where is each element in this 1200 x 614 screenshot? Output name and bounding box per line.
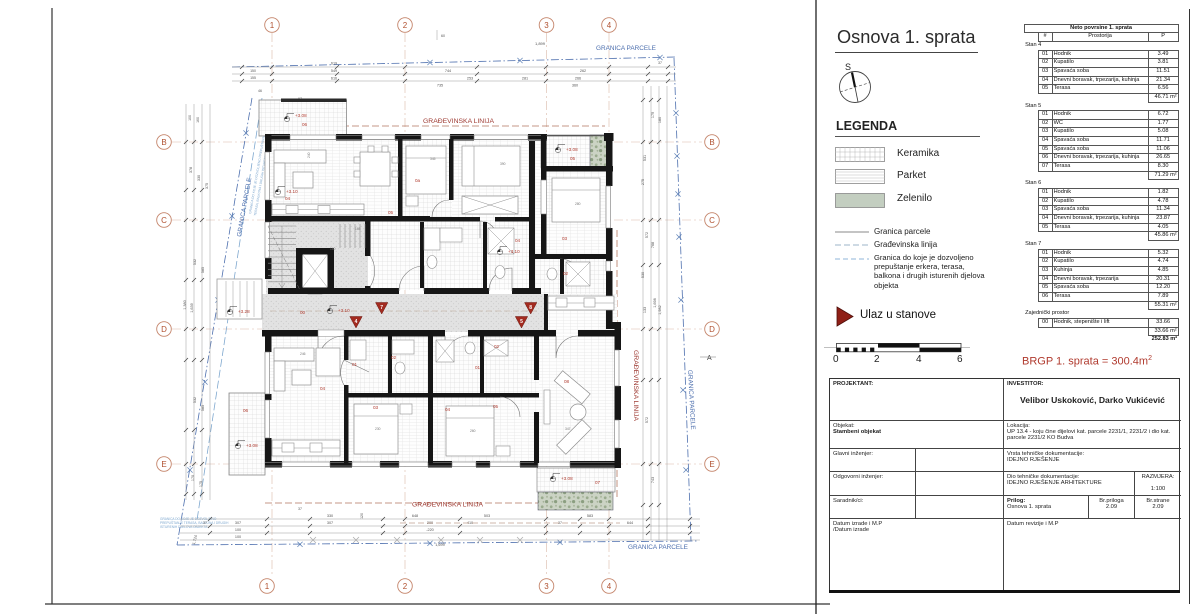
svg-text:530: 530 (641, 272, 645, 278)
svg-text:150: 150 (250, 69, 256, 73)
svg-text:C: C (709, 216, 715, 225)
svg-text:100: 100 (235, 535, 241, 539)
svg-text:345: 345 (430, 157, 436, 161)
svg-text:1,724: 1,724 (192, 535, 198, 545)
svg-text:B: B (709, 138, 714, 147)
svg-text:0a: 0a (415, 178, 421, 183)
svg-text:02: 02 (494, 344, 500, 349)
svg-text:03: 03 (562, 236, 568, 241)
svg-text:3: 3 (544, 21, 549, 30)
svg-text:1,982: 1,982 (658, 305, 662, 315)
svg-text:04: 04 (445, 407, 451, 412)
svg-text:ISTURENIH DJELOVA OBJEKTA: ISTURENIH DJELOVA OBJEKTA (160, 525, 208, 529)
svg-text:375: 375 (205, 183, 209, 189)
svg-text:1,380: 1,380 (183, 300, 187, 310)
svg-text:572: 572 (645, 232, 649, 238)
svg-text:+3.10: +3.10 (338, 308, 350, 313)
svg-text:S: S (845, 62, 851, 72)
svg-text:1: 1 (270, 21, 275, 30)
svg-text:04: 04 (515, 238, 521, 243)
svg-text:+3.28: +3.28 (238, 309, 250, 314)
svg-text:03: 03 (373, 405, 379, 410)
svg-text:1,698: 1,698 (653, 298, 657, 308)
svg-text:04: 04 (320, 386, 326, 391)
svg-text:00: 00 (300, 310, 306, 315)
svg-text:GRAĐEVINSKA LINIJA: GRAĐEVINSKA LINIJA (423, 118, 494, 125)
svg-text:B: B (161, 138, 166, 147)
svg-text:C: C (161, 216, 167, 225)
svg-text:160: 160 (196, 117, 200, 123)
svg-text:46: 46 (258, 89, 262, 93)
svg-text:179: 179 (651, 112, 655, 118)
svg-text:2: 2 (403, 582, 408, 591)
svg-text:585: 585 (201, 405, 205, 411)
svg-text:307: 307 (327, 521, 333, 525)
svg-text:GRAĐEVINSKA LINIJA: GRAĐEVINSKA LINIJA (412, 502, 483, 509)
svg-text:378: 378 (189, 167, 193, 173)
svg-text:360: 360 (572, 84, 578, 88)
svg-text:D: D (161, 325, 167, 334)
svg-text:100: 100 (235, 528, 241, 532)
svg-text:37: 37 (298, 507, 302, 511)
svg-text:1: 1 (265, 582, 270, 591)
svg-text:D: D (709, 325, 715, 334)
svg-text:175: 175 (199, 481, 203, 487)
svg-text:37: 37 (203, 521, 207, 525)
svg-text:503: 503 (484, 514, 490, 518)
svg-text:743: 743 (651, 477, 655, 483)
svg-text:330: 330 (327, 514, 333, 518)
svg-text:260: 260 (470, 429, 476, 433)
svg-text:04: 04 (285, 196, 291, 201)
svg-text:253: 253 (467, 77, 473, 81)
svg-text:155: 155 (250, 76, 256, 80)
svg-text:133: 133 (643, 307, 647, 313)
svg-text:583: 583 (587, 514, 593, 518)
svg-text:06: 06 (243, 408, 249, 413)
svg-text:05: 05 (570, 156, 576, 161)
svg-text:37: 37 (658, 61, 662, 65)
svg-text:262: 262 (580, 69, 586, 73)
svg-text:02: 02 (563, 271, 569, 276)
svg-text:+3.08: +3.08 (295, 113, 307, 118)
svg-text:+3.08: +3.08 (246, 443, 258, 448)
svg-text:246: 246 (300, 352, 306, 356)
svg-text:+3.10: +3.10 (508, 249, 520, 254)
svg-text:5: 5 (520, 319, 523, 325)
svg-text:8: 8 (529, 305, 532, 311)
svg-text:180: 180 (658, 117, 662, 123)
svg-text:08: 08 (564, 379, 570, 384)
svg-text:1,899: 1,899 (535, 41, 546, 46)
svg-text:549: 549 (331, 69, 337, 73)
svg-text:05: 05 (493, 404, 499, 409)
svg-text:1,699: 1,699 (435, 543, 445, 547)
svg-text:GRANICA PARCELE: GRANICA PARCELE (686, 370, 696, 430)
svg-text:307: 307 (235, 521, 241, 525)
svg-text:585: 585 (201, 267, 205, 273)
svg-text:165: 165 (355, 227, 361, 231)
svg-text:+3.10: +3.10 (286, 189, 298, 194)
svg-text:06: 06 (302, 122, 308, 127)
svg-text:4: 4 (355, 319, 358, 325)
svg-text:266: 266 (575, 77, 581, 81)
svg-text:160: 160 (330, 247, 336, 251)
svg-text:4: 4 (607, 21, 612, 30)
svg-text:619: 619 (331, 62, 337, 66)
svg-text:A: A (707, 355, 712, 362)
svg-text:281: 281 (522, 77, 528, 81)
svg-text:GRANICA PARCELE: GRANICA PARCELE (628, 544, 688, 551)
svg-text:07: 07 (595, 480, 601, 485)
svg-text:230: 230 (375, 427, 381, 431)
svg-text:532: 532 (193, 259, 197, 265)
svg-text:648: 648 (412, 514, 418, 518)
svg-text:GRAĐEVINSKA LINIJA: GRAĐEVINSKA LINIJA (632, 350, 639, 421)
svg-text:744: 744 (445, 69, 451, 73)
svg-text:100: 100 (188, 115, 192, 121)
svg-text:390: 390 (500, 162, 506, 166)
svg-text:531: 531 (643, 155, 647, 161)
svg-text:240: 240 (307, 152, 311, 158)
svg-text:330: 330 (197, 175, 201, 181)
svg-text:+3.08: +3.08 (566, 147, 578, 152)
svg-text:644: 644 (627, 521, 633, 525)
svg-text:280: 280 (575, 202, 581, 206)
svg-text:2: 2 (403, 21, 408, 30)
svg-text:347: 347 (565, 427, 571, 431)
svg-text:3: 3 (544, 582, 549, 591)
svg-text:735: 735 (437, 84, 443, 88)
svg-text:60: 60 (441, 34, 445, 38)
svg-text:170: 170 (191, 475, 195, 481)
svg-text:E: E (161, 460, 166, 469)
svg-text:-220: -220 (426, 528, 434, 532)
svg-text:01: 01 (352, 362, 358, 367)
svg-text:616: 616 (331, 77, 337, 81)
svg-text:+3.08: +3.08 (561, 476, 573, 481)
svg-text:120: 120 (360, 513, 364, 519)
svg-text:4: 4 (607, 582, 612, 591)
svg-text:768: 768 (651, 242, 655, 248)
svg-text:275: 275 (641, 179, 645, 185)
svg-text:532: 532 (193, 397, 197, 403)
svg-text:02: 02 (391, 355, 397, 360)
svg-text:7: 7 (380, 305, 383, 311)
svg-text:GRANICA PARCELE: GRANICA PARCELE (596, 45, 656, 52)
svg-text:1,639: 1,639 (190, 303, 194, 313)
svg-text:572: 572 (645, 417, 649, 423)
svg-text:05: 05 (388, 210, 394, 215)
svg-text:E: E (709, 460, 714, 469)
svg-text:01: 01 (475, 365, 481, 370)
